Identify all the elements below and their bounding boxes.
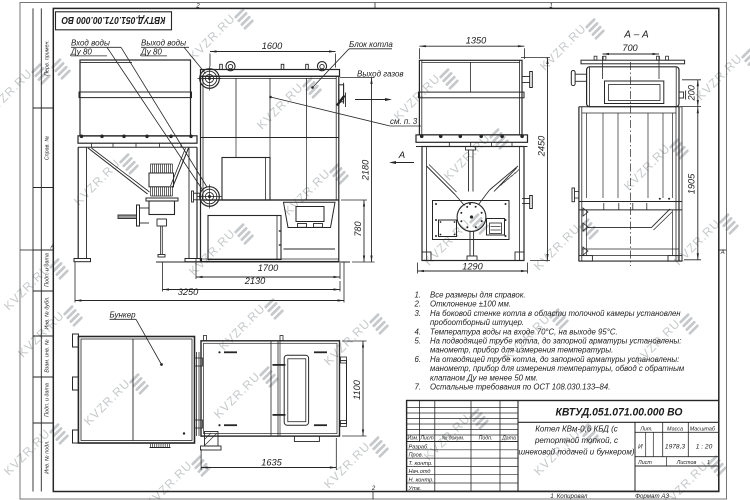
svg-text:4.: 4. — [414, 327, 421, 336]
svg-text:1600: 1600 — [262, 41, 283, 51]
svg-text:Инв. № дубл.: Инв. № дубл. — [45, 296, 51, 329]
svg-text:Т. контр.: Т. контр. — [409, 461, 433, 467]
svg-text:манометр, прибор для измерения: манометр, прибор для измерения температу… — [430, 364, 685, 373]
svg-text:2: 2 — [195, 3, 200, 9]
svg-text:2450: 2450 — [537, 135, 547, 157]
svg-text:Остальные требования по ОСТ 10: Остальные требования по ОСТ 108.030.133–… — [430, 383, 610, 392]
svg-text:Лит.: Лит. — [639, 426, 653, 432]
svg-text:1.: 1. — [414, 291, 421, 300]
svg-text:Масштаб: Масштаб — [690, 426, 716, 432]
svg-text:Лист: Лист — [637, 460, 652, 466]
svg-text:Инв. № подл.: Инв. № подл. — [45, 440, 51, 473]
svg-text:1635: 1635 — [261, 458, 282, 468]
svg-text:Ду 80: Ду 80 — [70, 47, 92, 56]
svg-text:Пров.: Пров. — [409, 453, 424, 459]
svg-text:Изм.: Изм. — [407, 436, 418, 442]
svg-text:Ду 80: Ду 80 — [140, 47, 162, 56]
svg-text:1905: 1905 — [686, 173, 696, 194]
svg-text:Котел КВм-0,6 КБД (с: Котел КВм-0,6 КБД (с — [535, 425, 618, 434]
svg-text:Отклонение ±100 мм.: Отклонение ±100 мм. — [430, 300, 511, 309]
svg-text:КВТУД.051.071.00.000 ВО: КВТУД.051.071.00.000 ВО — [61, 14, 165, 25]
svg-text:1: 1 — [707, 460, 710, 466]
svg-text:Бункер: Бункер — [110, 311, 137, 320]
svg-text:Перв. примен.: Перв. примен. — [45, 40, 51, 76]
svg-text:А – А: А – А — [623, 30, 649, 41]
svg-text:Блок котла: Блок котла — [349, 40, 393, 49]
svg-text:см. п. 3: см. п. 3 — [390, 117, 418, 126]
svg-text:Н. контр.: Н. контр. — [409, 478, 434, 484]
svg-text:2: 2 — [371, 486, 376, 492]
svg-text:2130: 2130 — [244, 276, 266, 286]
svg-text:Подп. и дата: Подп. и дата — [45, 383, 51, 417]
svg-text:1700: 1700 — [258, 263, 279, 273]
svg-text:Масса: Масса — [667, 426, 683, 432]
svg-text:Подп. и дата: Подп. и дата — [45, 253, 51, 287]
svg-text:На подводящей трубе котла, до: На подводящей трубе котла, до запорной а… — [430, 337, 681, 346]
svg-text:Лист: Лист — [419, 436, 434, 442]
svg-text:ретортной топкой, с: ретортной топкой, с — [534, 436, 618, 445]
svg-text:манометр, прибор для измерения: манометр, прибор для измерения температу… — [430, 346, 613, 355]
svg-text:А: А — [398, 150, 405, 161]
svg-text:780: 780 — [353, 220, 363, 236]
svg-text:И: И — [638, 444, 643, 451]
svg-text:КВТУД.051.071.00.000 ВО: КВТУД.051.071.00.000 ВО — [556, 407, 684, 419]
svg-text:1100: 1100 — [352, 379, 362, 400]
svg-text:Вход воды: Вход воды — [71, 39, 110, 48]
svg-text:№ докум.: № докум. — [442, 436, 465, 442]
svg-text:3.: 3. — [414, 309, 421, 318]
svg-text:Листов: Листов — [676, 460, 697, 466]
svg-text:пробоотборный штуцер.: пробоотборный штуцер. — [430, 318, 524, 327]
svg-text:Утв.: Утв. — [408, 486, 422, 492]
svg-text:Выход воды: Выход воды — [141, 39, 186, 48]
svg-text:1 : 20: 1 : 20 — [696, 444, 713, 451]
svg-text:шнековой подачей и бункером): шнековой подачей и бункером) — [519, 448, 635, 457]
svg-text:Температура воды на входе 70°С: Температура воды на входе 70°С, на выход… — [430, 327, 618, 336]
svg-text:1978,3: 1978,3 — [665, 444, 686, 451]
svg-text:Подп.: Подп. — [479, 436, 493, 442]
svg-text:Дата: Дата — [501, 436, 516, 442]
svg-text:Взам. инв. №: Взам. инв. № — [45, 339, 51, 373]
svg-text:А: А — [49, 245, 54, 251]
svg-text:Разраб.: Разраб. — [409, 444, 429, 450]
svg-text:700: 700 — [622, 43, 638, 53]
svg-text:7.: 7. — [414, 383, 421, 392]
svg-text:А: А — [720, 250, 725, 256]
svg-text:Все размеры для справок.: Все размеры для справок. — [430, 291, 526, 300]
svg-text:1290: 1290 — [462, 262, 483, 272]
svg-text:Формат А3: Формат А3 — [635, 493, 669, 500]
svg-text:200: 200 — [687, 84, 697, 101]
svg-text:На боковой стенке котла в обла: На боковой стенке котла в области топочн… — [430, 309, 681, 318]
svg-text:3250: 3250 — [178, 287, 199, 297]
svg-text:2.: 2. — [413, 300, 421, 309]
svg-text:1350: 1350 — [466, 36, 487, 46]
svg-text:клапаном Ду не менее 50 мм.: клапаном Ду не менее 50 мм. — [430, 373, 538, 382]
svg-text:Нач.отд: Нач.отд — [409, 469, 431, 475]
svg-text:5.: 5. — [414, 337, 421, 346]
svg-text:2180: 2180 — [360, 159, 370, 181]
svg-text:На отводящей трубе котла, до з: На отводящей трубе котла, до запорной ар… — [430, 355, 679, 364]
svg-text:6.: 6. — [414, 355, 421, 364]
svg-text:Справ. №: Справ. № — [45, 136, 51, 161]
svg-text:1: 1 — [549, 3, 552, 9]
svg-text:1: 1 — [550, 494, 553, 500]
svg-text:Копировал: Копировал — [557, 493, 588, 500]
